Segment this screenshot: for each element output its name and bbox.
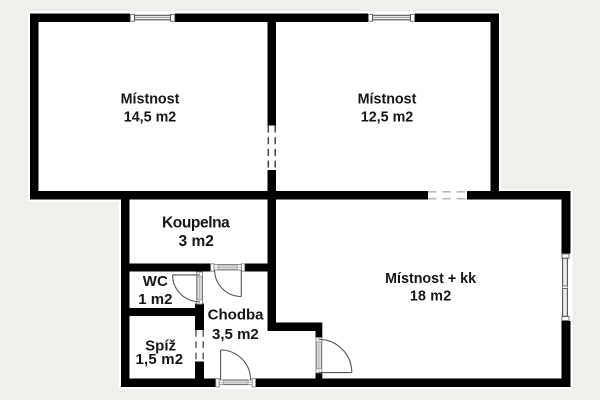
svg-text:Místnost + kk: Místnost + kk	[385, 271, 476, 287]
svg-text:1,5 m2: 1,5 m2	[135, 351, 183, 368]
svg-text:12,5 m2: 12,5 m2	[361, 109, 414, 125]
svg-text:Místnost: Místnost	[358, 92, 417, 108]
svg-text:1 m2: 1 m2	[138, 291, 172, 308]
svg-text:18 m2: 18 m2	[410, 289, 452, 305]
svg-text:Koupelna: Koupelna	[162, 214, 230, 231]
svg-text:Chodba: Chodba	[208, 306, 264, 323]
svg-text:Místnost: Místnost	[121, 92, 180, 108]
svg-text:3,5 m2: 3,5 m2	[212, 326, 259, 343]
svg-text:14,5 m2: 14,5 m2	[124, 109, 177, 125]
svg-text:WC: WC	[143, 273, 168, 290]
svg-text:3 m2: 3 m2	[179, 233, 214, 250]
